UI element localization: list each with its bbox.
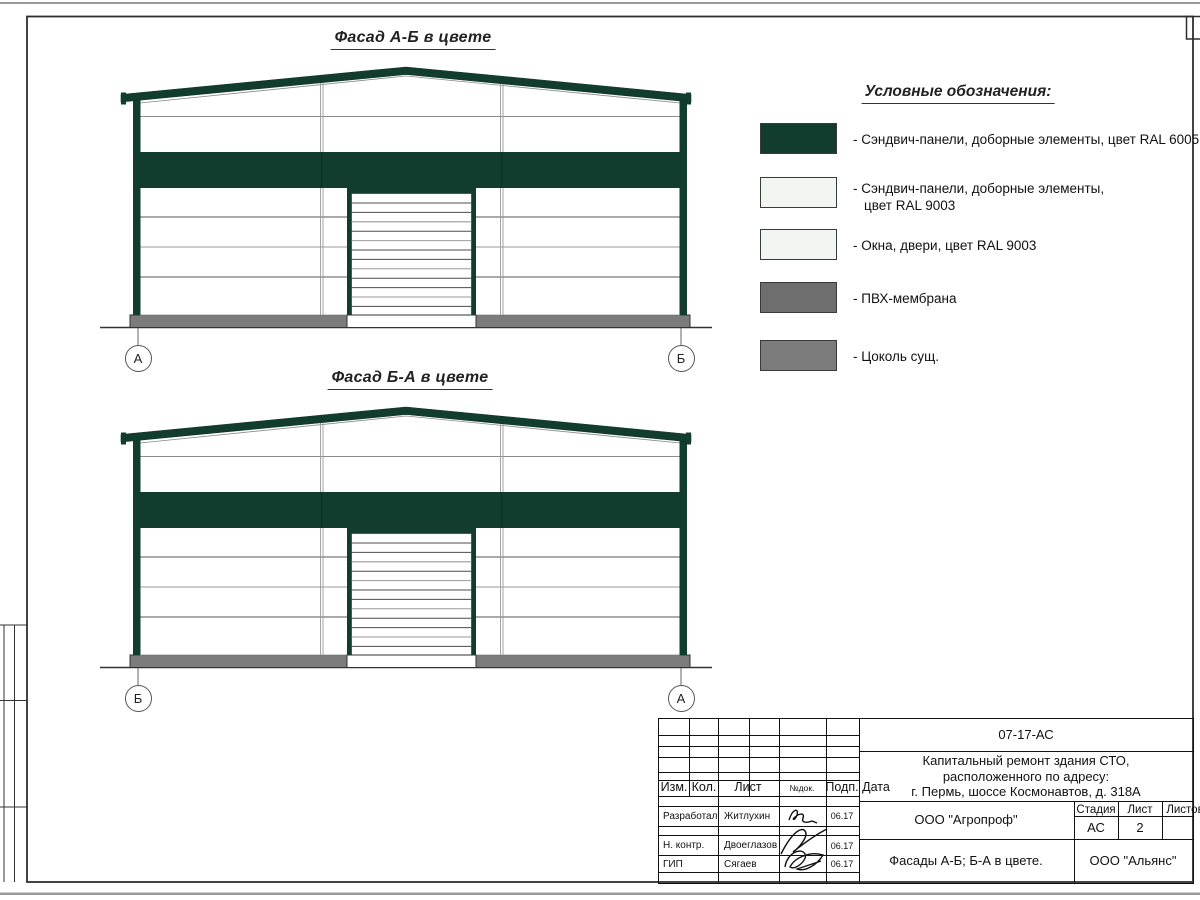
facade-ab-drawing <box>100 67 712 345</box>
tb-sheet-header: Лист <box>1128 804 1153 816</box>
legend-label-pvc-membrane: - ПВХ-мембрана <box>853 290 957 307</box>
axis-marker-a: А <box>125 345 152 372</box>
tb-role-developer: Разработал <box>663 811 717 822</box>
facade-ab-title: Фасад А-Б в цвете <box>331 29 496 50</box>
legend-swatch-ral6005 <box>760 123 837 154</box>
legend-title: Условные обозначения: <box>862 83 1055 104</box>
tb-name-gip: Сягаев <box>724 859 757 870</box>
tb-sheet-title: Фасады А-Б; Б-А в цвете. <box>889 854 1042 868</box>
drawing-sheet: Фасад А-Б в цвете Фасад Б-А в цвете А Б … <box>0 0 1200 900</box>
legend-swatch-ral9003 <box>760 177 837 208</box>
axis-marker-b2: Б <box>125 685 152 712</box>
legend-swatch-windows <box>760 229 837 260</box>
tb-project-line2: расположенного по адресу: <box>943 770 1109 784</box>
legend-swatch-plinth <box>760 340 837 371</box>
facade-ba-drawing <box>100 407 712 685</box>
tb-date-gip: 06.17 <box>831 859 854 869</box>
legend-swatch-pvc-membrane <box>760 282 837 313</box>
tb-date-developer: 06.17 <box>831 811 854 821</box>
tb-role-ncontrol: Н. контр. <box>663 840 704 851</box>
left-margin-table <box>0 625 27 882</box>
tb-firm: ООО "Альянс" <box>1090 854 1177 868</box>
legend-label-plinth: - Цоколь сущ. <box>853 348 939 365</box>
tb-col-data: Дата <box>862 781 890 794</box>
tb-doc-code: 07-17-АС <box>998 728 1053 742</box>
tb-project-line3: г. Пермь, шоссе Космонавтов, д. 318А <box>911 785 1140 799</box>
legend-label-windows: - Окна, двери, цвет RAL 9003 <box>853 237 1036 254</box>
tb-col-list: Лист <box>734 781 761 794</box>
tb-col-ndoc: №док. <box>790 784 815 793</box>
tb-name-ncontrol: Двоеглазов <box>724 840 777 851</box>
axis-marker-a2: А <box>668 685 695 712</box>
tb-col-podp: Подп. <box>825 781 858 794</box>
tb-stage-value: АС <box>1087 821 1105 835</box>
tb-col-izm: Изм. <box>661 781 688 794</box>
tb-stage-header: Стадия <box>1076 804 1115 816</box>
legend-label-ral6005: - Сэндвич-панели, доборные элементы, цве… <box>853 131 1199 148</box>
legend-label-ral9003: - Сэндвич-панели, доборные элементы,цвет… <box>853 180 1104 214</box>
tb-sheet-value: 2 <box>1136 821 1143 835</box>
tb-col-kol: Кол. <box>692 781 717 794</box>
facade-ba-title: Фасад Б-А в цвете <box>328 369 493 390</box>
axis-marker-b: Б <box>668 345 695 372</box>
tb-name-developer: Житлухин <box>724 811 770 822</box>
tb-sheets-header: Листов <box>1166 804 1200 816</box>
tb-date-ncontrol: 06.17 <box>831 841 854 851</box>
tb-project-line1: Капитальный ремонт здания СТО, <box>923 754 1130 768</box>
tb-role-gip: ГИП <box>663 859 683 870</box>
tb-org: ООО "Агропроф" <box>914 813 1017 827</box>
signature-gip <box>777 845 831 877</box>
title-block: Изм. Кол. Лист №док. Подп. Дата Разработ… <box>658 718 1194 884</box>
